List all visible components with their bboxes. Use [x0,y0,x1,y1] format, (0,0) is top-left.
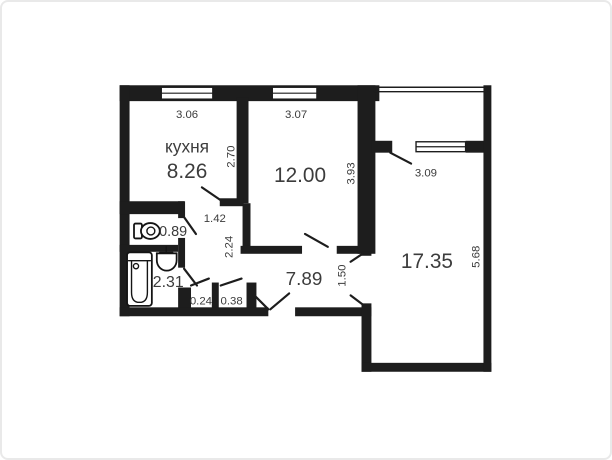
kitchen-name-label: кухня [165,137,209,157]
kitchen-window-icon [161,87,213,99]
wc-east-wall-mid [178,238,185,268]
bedroom-top-wall-left-block [371,141,392,153]
living-window-icon [272,87,317,99]
bedroom-top-wall-right-block [466,141,486,153]
bedroom-depth-dim: 5.68 [471,246,483,268]
kitchen-door-icon [202,187,221,200]
kitchen-width-dim: 3.06 [176,109,198,121]
balcony-edge-lines [373,87,487,91]
closet-large-area-label: 0.38 [221,295,243,307]
living-door-icon [305,234,328,247]
bedroom-doorway-splay-bottom [351,295,363,304]
wc-bath-divider-wall [120,245,178,252]
bedroom-doorway-dim: 1.50 [337,265,349,287]
closet-large-door-icon [221,279,242,286]
kitchen-living-divider-wall [237,97,249,203]
bedroom-doorway-splay-top [351,254,363,262]
balcony-window-icon [416,142,466,152]
bedroom-bottom-wall [362,363,492,372]
balcony-door-icon [390,153,411,164]
bedroom-area-label: 17.35 [401,250,453,273]
living-area-label: 12.00 [274,164,326,187]
living-east-wall [358,85,376,254]
entrance-door-leaf-icon [270,293,289,309]
living-width-dim: 3.07 [285,109,307,121]
closet-small-area-label: 0.24 [190,295,212,307]
corridor-length-dim: 2.24 [224,236,236,258]
top-wall [120,85,380,101]
floor-plan-drawing: 3.06 кухня 8.26 2.70 3.07 12.00 3.93 3.0… [2,2,610,458]
kitchen-area-label: 8.26 [167,160,207,183]
labels: 3.06 кухня 8.26 2.70 3.07 12.00 3.93 3.0… [153,109,483,307]
right-wall [483,85,491,371]
closet-divider-wall-1 [212,283,219,312]
bathroom-area-label: 2.31 [153,274,184,291]
wc-east-wall-upper [178,201,185,218]
kitchen-south-wall-right [220,198,244,206]
corridor-width-dim: 1.42 [204,213,226,225]
bedroom-width-dim: 3.09 [415,167,437,179]
hall-bedroom-wall-lower [362,303,372,371]
toilet-icon [134,223,160,239]
bottom-wall-mid [295,307,371,316]
hallway-area-label: 7.89 [286,268,323,289]
kitchen-south-wall-left [120,201,184,214]
corridor-east-wall [243,203,251,252]
living-south-wall-left [241,246,302,254]
kitchen-depth-dim: 2.70 [226,146,238,168]
bottom-wall-left [120,307,269,316]
living-depth-dim: 3.93 [346,162,358,184]
wc-area-label: 0.89 [159,224,187,240]
bathtub-icon [127,252,152,306]
floor-plan-card: 3.06 кухня 8.26 2.70 3.07 12.00 3.93 3.0… [0,0,612,460]
